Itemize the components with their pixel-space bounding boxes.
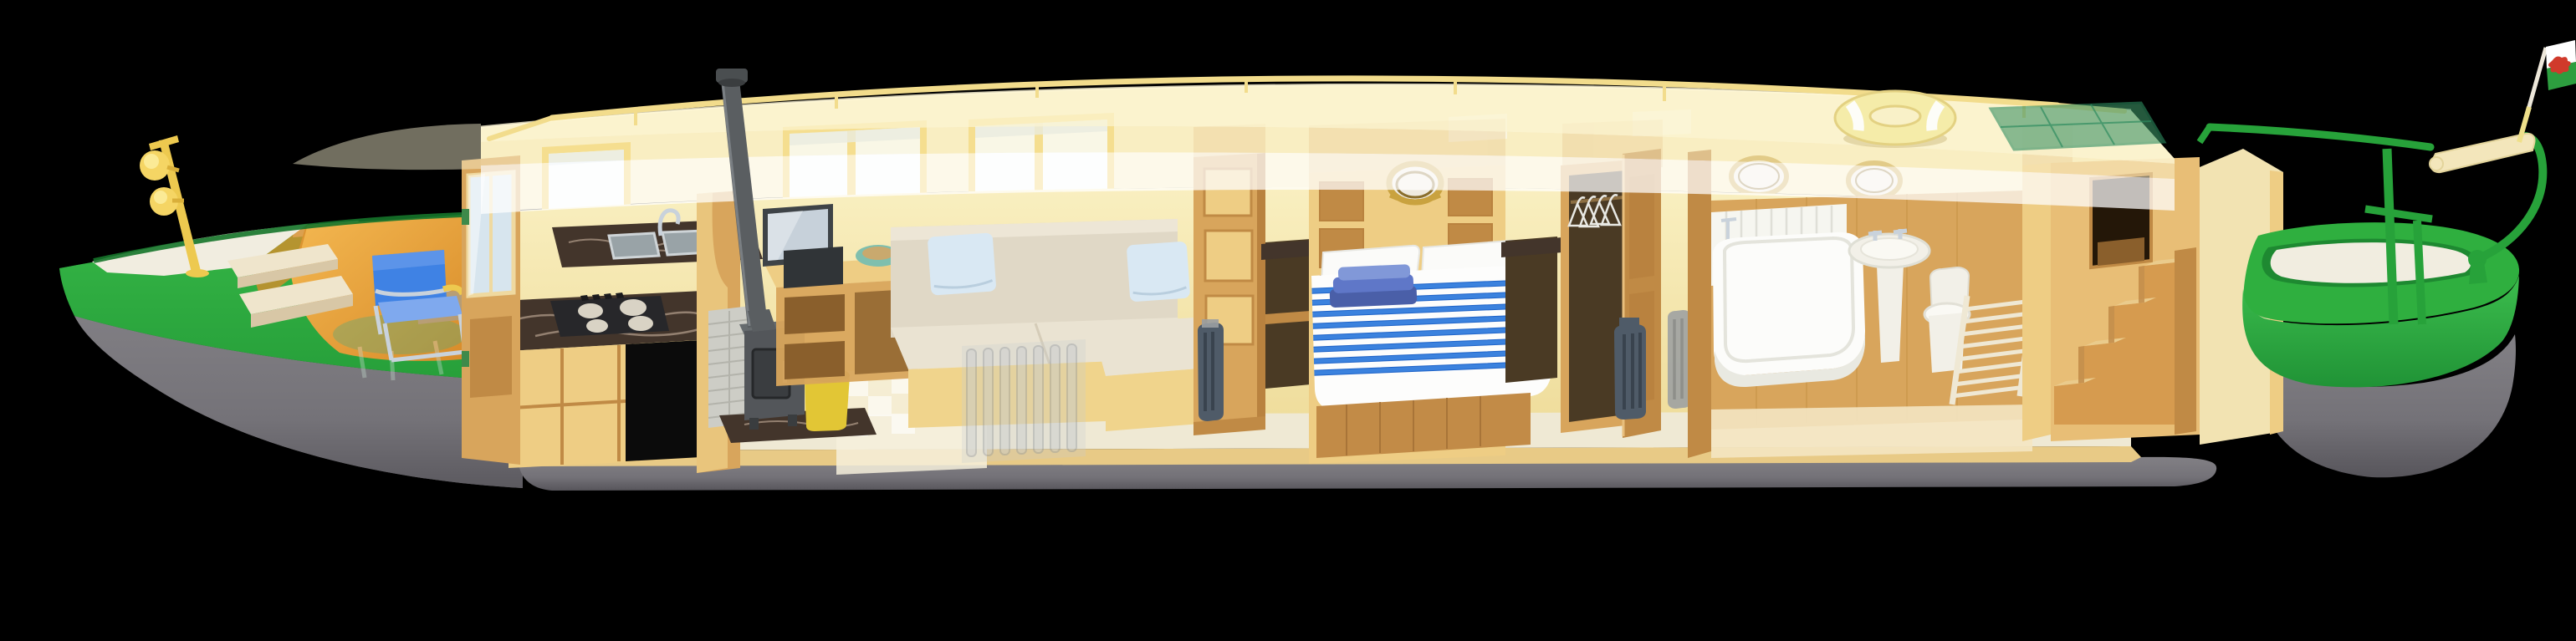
bulkhead-hinge-2 <box>462 351 469 367</box>
navigation-lamp-lower-glow <box>154 191 167 204</box>
hob <box>550 296 669 337</box>
saloon-radiator <box>962 339 1086 463</box>
burner-4 <box>628 316 653 331</box>
welsh-flag <box>2546 40 2576 90</box>
railing-post-cap <box>2365 209 2432 219</box>
sofa-chaise-seat <box>1091 318 1211 376</box>
bulkhead-hinge-1 <box>462 209 469 225</box>
sink-bowl-1 <box>609 233 659 258</box>
pole-base <box>186 269 209 277</box>
railing-top-bar <box>2210 127 2430 147</box>
burner-3 <box>586 319 608 333</box>
media-box <box>784 247 843 288</box>
navigation-lamp-upper-glow <box>144 154 159 169</box>
solar-panel <box>1991 103 2165 150</box>
cabinet-panel-2 <box>1205 231 1252 281</box>
bedroom-radiator-2 <box>1668 310 1691 409</box>
bathroom-floor <box>1711 404 2032 458</box>
chimney-collar <box>718 79 745 87</box>
tv-cabinet-cubby-1 <box>785 294 845 334</box>
railing-post-2 <box>2417 221 2422 324</box>
saloon <box>891 219 1211 463</box>
sink-pedestal <box>1877 264 1904 363</box>
life-ring-hole <box>1870 106 1920 126</box>
sofa-pillow-right <box>1127 242 1191 303</box>
tv-cabinet-cubby-2 <box>785 341 845 379</box>
sofa-pillow-left <box>928 232 997 295</box>
small-radiator <box>1198 319 1224 421</box>
sink-basin-inner <box>1861 238 1918 260</box>
nook-cavity <box>1505 237 1557 383</box>
life-ring <box>1835 91 1955 148</box>
bathroom-divider-wall <box>1688 150 1711 458</box>
bedside-nook-right <box>1501 237 1562 383</box>
burner-1 <box>578 303 603 318</box>
stairs-stringer <box>2175 247 2196 435</box>
tiller-handle-cap <box>2430 157 2443 170</box>
bedside-nook-left <box>1261 239 1315 389</box>
flag-assembly <box>2519 40 2576 142</box>
burner-2 <box>620 299 647 316</box>
towel-stack <box>1330 264 1418 308</box>
bathtub <box>1713 232 1865 375</box>
bedroom-radiator-1 <box>1614 318 1646 420</box>
narrowboat-cutaway-scene <box>0 0 2576 641</box>
bulkhead-lower-panel <box>470 316 512 398</box>
fruit-bowl-inner <box>862 247 894 260</box>
ghost-roof-bow <box>293 124 481 170</box>
bedroom <box>1300 149 1691 464</box>
railing-elbow <box>2200 127 2210 142</box>
cabinet-edge <box>1257 153 1265 423</box>
boat-illustration <box>0 0 2576 641</box>
